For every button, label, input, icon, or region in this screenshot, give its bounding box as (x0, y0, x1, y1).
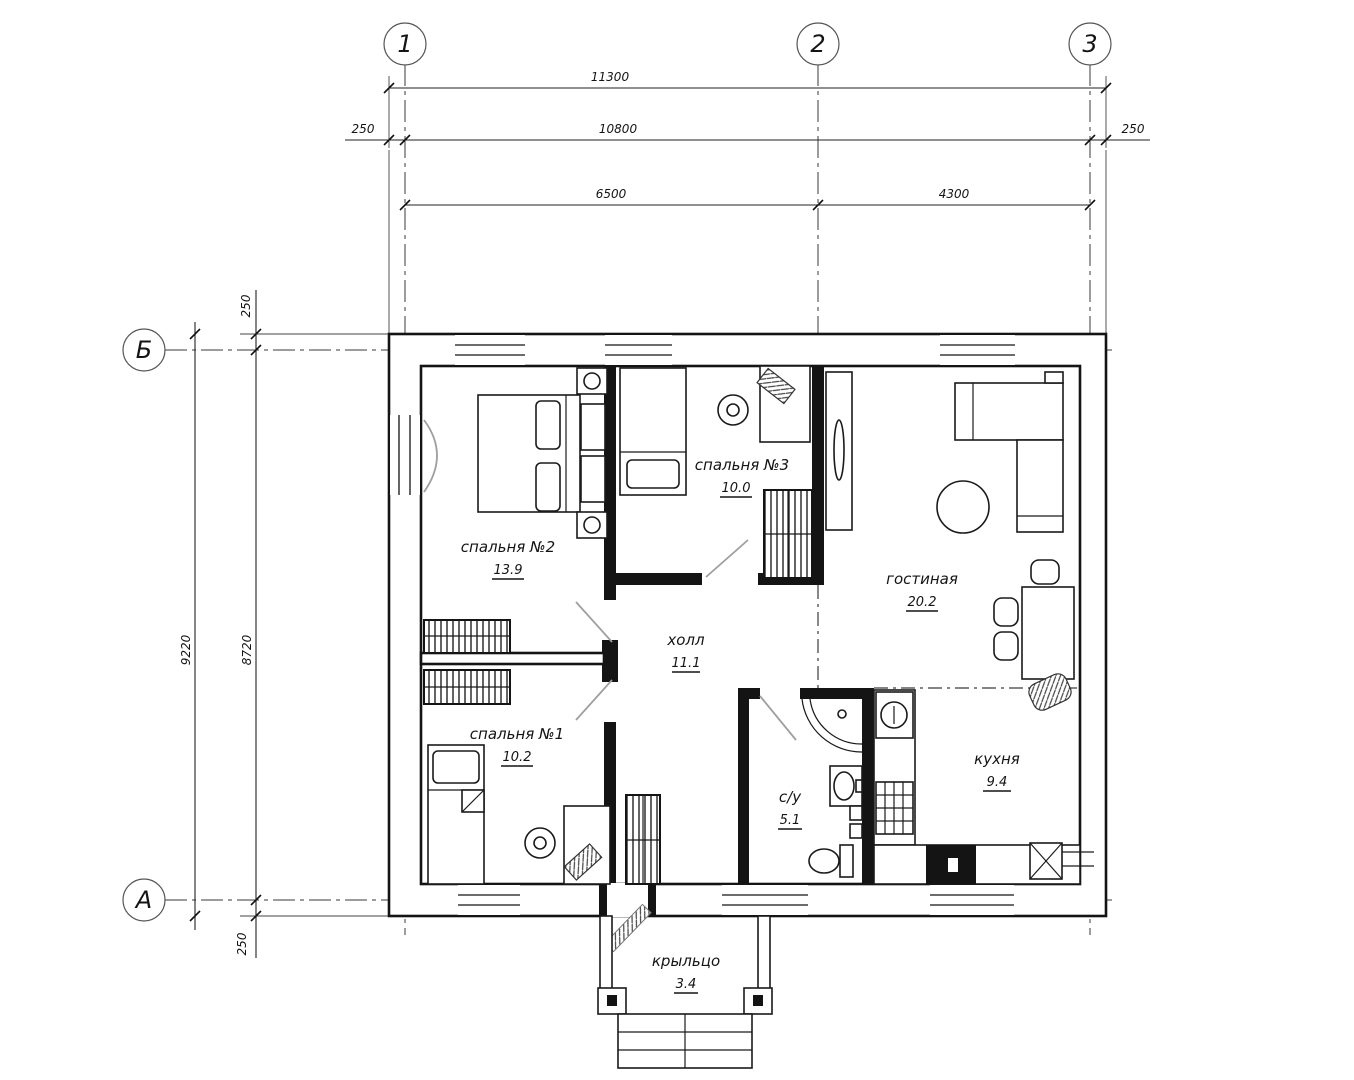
room-area-porch: 3.4 (676, 977, 697, 992)
room-area-kitchen: 9.4 (987, 775, 1008, 790)
wall-bathroom-top-right (800, 688, 862, 699)
dim-top-inner: 10800 (599, 122, 638, 136)
axis-label-b: Б (136, 336, 152, 364)
coffee-table (937, 481, 989, 533)
window-living-top (940, 334, 1015, 366)
window-bedroom3-top (605, 334, 672, 366)
axis-label-3: 3 (1082, 30, 1097, 58)
axis-label-2: 2 (810, 30, 825, 58)
window-bedroom2-top (455, 334, 525, 366)
tv-stand (826, 372, 852, 530)
porch-column-right (744, 988, 772, 1014)
room-name-kitchen: кухня (974, 750, 1020, 768)
room-area-bathroom: 5.1 (780, 813, 801, 828)
room-name-hall: холл (666, 631, 705, 649)
dim-top-total: 11300 (591, 70, 630, 84)
dim-left-offset-top: 250 (239, 294, 253, 317)
wardrobe-bedroom2 (424, 620, 510, 653)
dimensions-top: 11300 250 10800 250 6500 4300 (345, 70, 1150, 334)
dim-left-total: 9220 (179, 634, 193, 665)
floor-plan-page: 1 2 3 Б А 11300 250 10800 250 6500 4300 (0, 0, 1354, 1080)
room-area-bedroom3: 10.0 (722, 481, 751, 496)
window-bathroom-bottom (722, 884, 808, 916)
porch-wall-right (758, 916, 770, 990)
nightstand-top (577, 368, 607, 450)
single-bed-bedroom3 (620, 368, 686, 495)
wall-bedroom3-hall-left (616, 573, 702, 585)
window-bedroom1-bottom (458, 884, 520, 916)
single-bed-bedroom1 (428, 745, 484, 884)
room-name-bedroom3: спальня №3 (695, 456, 789, 474)
wardrobe-bedroom1 (424, 670, 510, 704)
porch-steps (618, 1014, 752, 1068)
nightstand-bottom (577, 456, 607, 538)
wall-bedroom3-living (812, 366, 824, 585)
kitchen-counter-left (874, 690, 915, 845)
wall-bathroom-left (738, 688, 749, 884)
wall-bedroom1-bedroom2 (421, 653, 604, 664)
room-area-bedroom2: 13.9 (494, 563, 523, 578)
window-kitchen-bottom (930, 884, 1014, 916)
room-name-living: гостиная (886, 570, 958, 588)
dim-top-offset-left: 250 (352, 122, 375, 136)
dim-top-offset-right: 250 (1122, 122, 1145, 136)
wardrobe-hall (626, 795, 660, 884)
double-bed (478, 395, 580, 512)
porch-column-left (598, 988, 626, 1014)
room-name-bathroom: с/у (779, 788, 802, 806)
desk-bedroom3 (757, 366, 810, 442)
room-area-hall: 11.1 (672, 656, 701, 671)
axis-label-1: 1 (397, 30, 412, 58)
room-area-living: 20.2 (908, 595, 937, 610)
chair-bedroom1 (525, 828, 555, 858)
room-name-porch: крыльцо (652, 952, 720, 970)
dim-left-offset-bottom: 250 (235, 932, 249, 955)
room-area-bedroom1: 10.2 (503, 750, 532, 765)
bathroom-sink (830, 766, 862, 806)
room-name-bedroom1: спальня №1 (470, 725, 564, 743)
wall-bathroom-kitchen (862, 688, 874, 884)
chair-bedroom3 (718, 395, 748, 425)
porch-wall-left (600, 916, 612, 990)
dim-left-inner: 8720 (240, 634, 254, 665)
dim-span-1-2: 6500 (596, 187, 627, 201)
room-name-bedroom2: спальня №2 (461, 538, 555, 556)
bathroom-shelf (850, 806, 862, 820)
dimensions-left: 9220 250 8720 250 (179, 290, 389, 958)
axis-label-a: А (134, 886, 152, 914)
dim-span-2-3: 4300 (939, 187, 970, 201)
floor-plan-canvas: 1 2 3 Б А 11300 250 10800 250 6500 4300 (0, 0, 1354, 1080)
wardrobe-bedroom3 (764, 490, 812, 578)
bathroom-boiler (850, 824, 862, 838)
kitchen-counter-bottom (874, 843, 1094, 884)
wall-bathroom-top-left (738, 688, 760, 699)
desk-bedroom1 (564, 806, 610, 884)
